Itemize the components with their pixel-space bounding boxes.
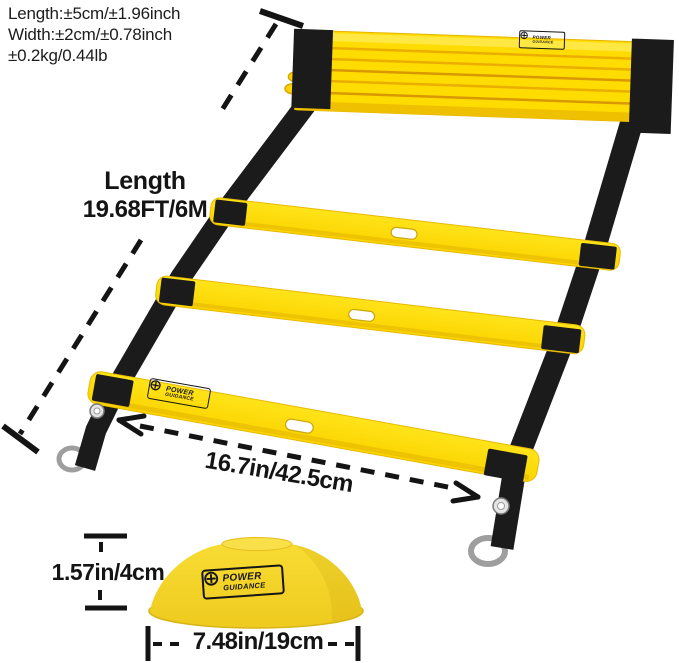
length-title: Length xyxy=(40,167,250,195)
ladder-rung xyxy=(155,275,586,355)
cone-height-label: 1.57in/4cm xyxy=(45,559,171,586)
product-dimension-diagram: Length:±5cm/±1.96inch Width:±2cm/±0.78in… xyxy=(0,0,679,663)
rung-clip xyxy=(541,325,582,353)
brand-icon xyxy=(520,31,528,39)
tolerance-line-length: Length:±5cm/±1.96inch xyxy=(8,3,180,24)
brand-logo-cone: POWER GUIDANCE xyxy=(201,564,285,600)
grommet-icon-right xyxy=(493,498,509,514)
length-dimension-label: Length 19.68FT/6M xyxy=(40,167,250,224)
rung-clip xyxy=(159,277,196,306)
tolerance-line-weight: ±0.2kg/0.44lb xyxy=(8,45,180,66)
brand-name-line2: GUIDANCE xyxy=(223,582,266,592)
brand-icon xyxy=(149,379,162,392)
brand-name-line2: GUIDANCE xyxy=(532,40,553,44)
length-value: 19.68FT/6M xyxy=(40,195,250,224)
length-tick-top xyxy=(260,11,303,26)
ladder-rung xyxy=(209,197,621,271)
brand-logo-bundle: POWER GUIDANCE xyxy=(519,30,566,50)
width-arrowhead-right xyxy=(453,483,478,501)
rung-bundle xyxy=(284,27,674,134)
tolerance-line-width: Width:±2cm/±0.78inch xyxy=(8,24,180,45)
brand-icon xyxy=(203,571,219,587)
bundle-strap-left xyxy=(291,29,333,109)
grommet-icon-left xyxy=(90,404,104,418)
rung-clip xyxy=(579,243,617,270)
bundle-strap-right xyxy=(629,39,674,134)
cone-diameter-label: 7.48in/19cm xyxy=(183,628,333,656)
tolerance-note: Length:±5cm/±1.96inch Width:±2cm/±0.78in… xyxy=(8,3,180,66)
